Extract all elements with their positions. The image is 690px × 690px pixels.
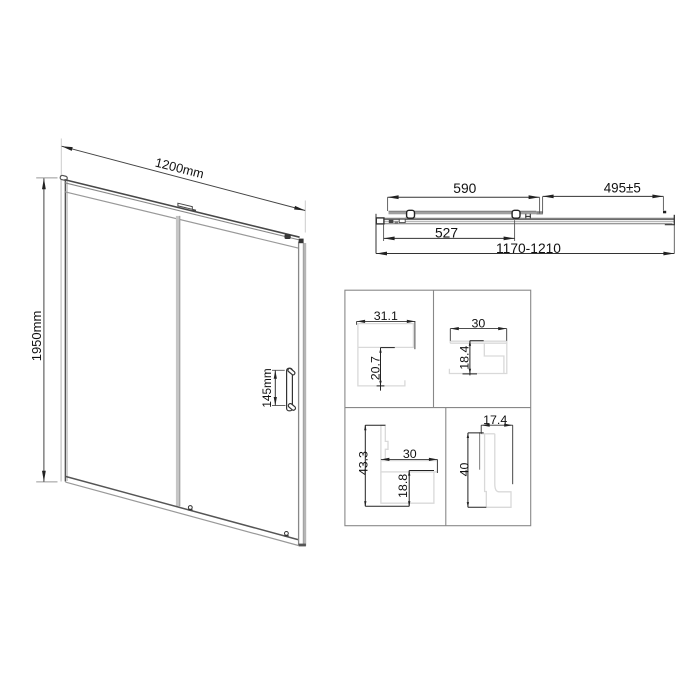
svg-text:17.4: 17.4 (483, 413, 507, 427)
svg-text:18.8: 18.8 (396, 474, 410, 498)
svg-text:527: 527 (435, 226, 458, 241)
svg-text:30: 30 (472, 316, 486, 330)
svg-text:1170-1210: 1170-1210 (496, 241, 561, 256)
svg-text:31.1: 31.1 (374, 309, 398, 323)
svg-text:30: 30 (403, 447, 417, 461)
svg-text:40: 40 (457, 463, 471, 477)
svg-text:18.4: 18.4 (457, 346, 471, 370)
svg-text:145mm: 145mm (260, 368, 274, 408)
svg-text:1950mm: 1950mm (29, 311, 44, 362)
svg-text:590: 590 (453, 181, 476, 196)
svg-text:495±5: 495±5 (604, 181, 641, 196)
svg-text:43.3: 43.3 (356, 451, 370, 475)
svg-text:20.7: 20.7 (369, 356, 383, 380)
